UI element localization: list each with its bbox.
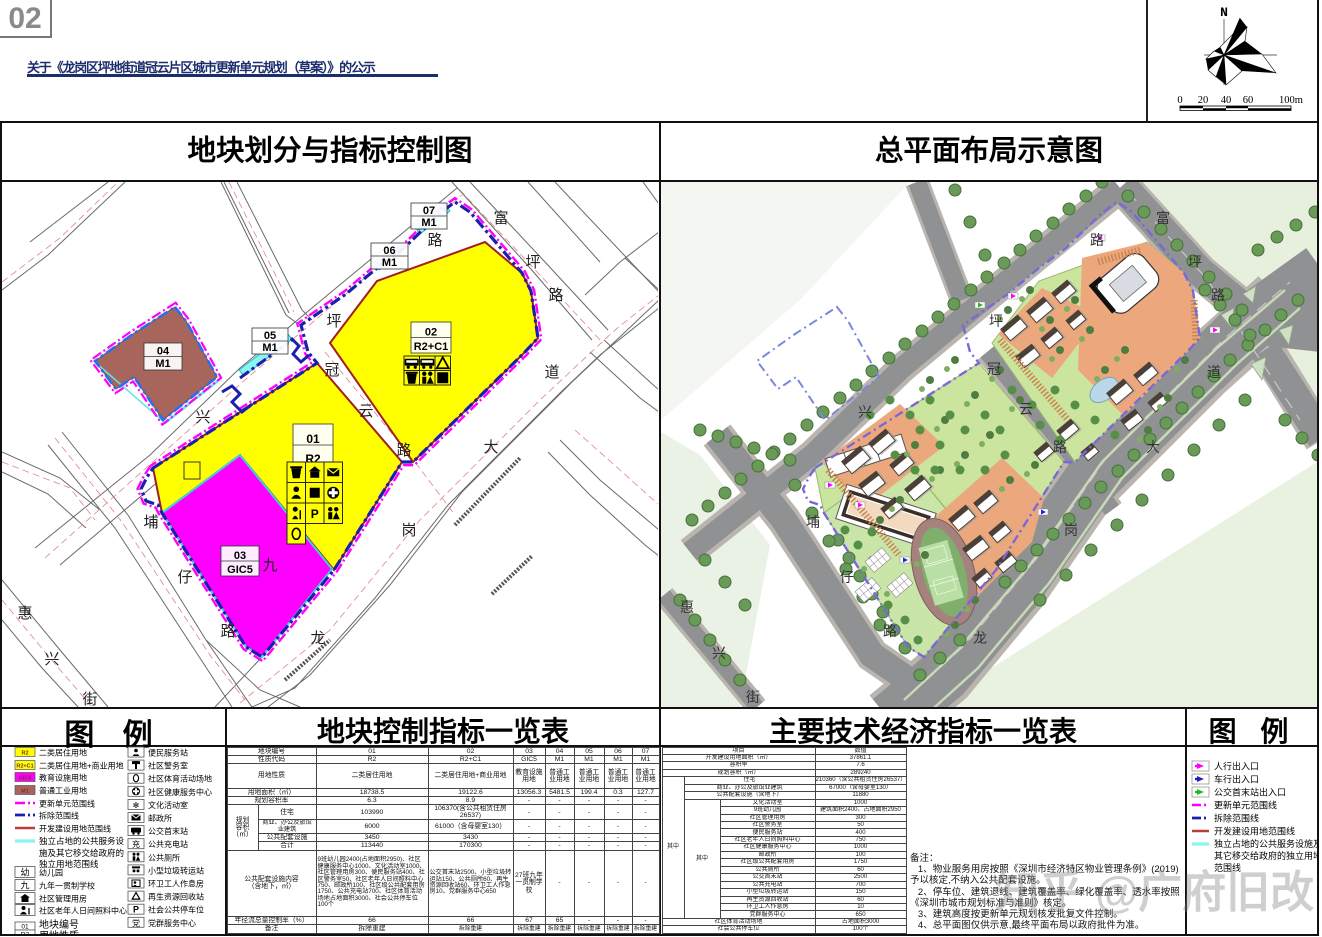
svg-text:0: 0	[1177, 95, 1182, 106]
svg-text:GIC5: GIC5	[19, 776, 32, 782]
svg-text:大: 大	[483, 439, 498, 456]
svg-text:岗: 岗	[401, 522, 416, 539]
svg-text:九: 九	[262, 557, 277, 574]
svg-text:街: 街	[746, 689, 760, 705]
svg-text:07: 07	[423, 205, 435, 217]
svg-text:社区体育活动场地: 社区体育活动场地	[148, 774, 212, 784]
svg-text:公交首末站出入口: 公交首末站出入口	[1214, 787, 1286, 798]
svg-text:06: 06	[383, 245, 395, 257]
svg-text:兴: 兴	[858, 404, 872, 420]
svg-text:独立占地的公共服务设施及: 独立占地的公共服务设施及	[1214, 838, 1318, 849]
svg-text:邮政所: 邮政所	[148, 813, 172, 823]
svg-text:40: 40	[1221, 95, 1232, 106]
svg-text:幼: 幼	[20, 867, 29, 878]
svg-text:M1: M1	[155, 358, 170, 370]
svg-text:独立占地的公共服务设: 独立占地的公共服务设	[39, 836, 125, 846]
svg-text:02: 02	[425, 327, 437, 339]
svg-text:M1: M1	[382, 257, 397, 269]
svg-text:01: 01	[21, 924, 29, 931]
svg-text:道: 道	[544, 364, 559, 381]
svg-text:社区管理用房: 社区管理用房	[39, 894, 87, 904]
svg-text:03: 03	[234, 550, 246, 562]
svg-text:路: 路	[548, 287, 563, 304]
svg-text:惠: 惠	[17, 605, 32, 622]
svg-text:100m: 100m	[1279, 95, 1303, 106]
svg-text:富: 富	[1156, 210, 1170, 226]
svg-text:拆除范围线: 拆除范围线	[39, 811, 79, 821]
svg-text:开发建设用地范围线: 开发建设用地范围线	[1214, 826, 1295, 837]
svg-text:兴: 兴	[195, 409, 210, 426]
svg-text:环卫工人作息房: 环卫工人作息房	[148, 879, 204, 889]
svg-text:冠: 冠	[324, 362, 339, 379]
svg-text:兴: 兴	[44, 651, 59, 668]
svg-text:路: 路	[396, 442, 411, 459]
svg-text:路: 路	[220, 623, 235, 640]
svg-text:九: 九	[20, 881, 29, 891]
svg-text:01: 01	[306, 432, 320, 446]
svg-text:地块编号: 地块编号	[39, 918, 79, 931]
svg-text:富: 富	[493, 209, 508, 227]
svg-text:坪: 坪	[989, 313, 1003, 329]
svg-text:街: 街	[82, 691, 97, 707]
svg-text:龙: 龙	[310, 630, 325, 647]
svg-text:05: 05	[264, 330, 276, 342]
svg-text:坪: 坪	[326, 313, 341, 330]
svg-text:公交首末站: 公交首末站	[148, 826, 188, 836]
svg-text:坪: 坪	[1188, 254, 1202, 270]
svg-text:公共充电站: 公共充电站	[148, 839, 188, 849]
svg-text:文化活动室: 文化活动室	[148, 800, 188, 810]
svg-text:九年一贯制学校: 九年一贯制学校	[39, 881, 95, 891]
svg-text:✻: ✻	[133, 801, 140, 810]
svg-text:仔: 仔	[840, 569, 854, 585]
svg-text:兴: 兴	[712, 645, 726, 661]
svg-text:M1: M1	[21, 789, 29, 795]
svg-text:埔: 埔	[143, 514, 158, 531]
svg-text:普通工业用地: 普通工业用地	[39, 786, 87, 796]
svg-text:20: 20	[1198, 95, 1209, 106]
svg-text:埔: 埔	[806, 514, 820, 530]
svg-text:M1: M1	[421, 217, 436, 229]
svg-text:社会公共停车位: 社会公共停车位	[148, 905, 204, 915]
svg-text:60: 60	[1243, 95, 1254, 106]
svg-text:更新单元范围线: 更新单元范围线	[1214, 800, 1277, 811]
svg-text:路: 路	[1090, 232, 1104, 248]
svg-text:坪: 坪	[525, 254, 540, 271]
svg-text:路: 路	[1211, 287, 1225, 303]
svg-text:冠: 冠	[987, 361, 1001, 377]
svg-text:惠: 惠	[680, 599, 694, 615]
svg-text:GIC5: GIC5	[227, 564, 253, 576]
svg-text:道: 道	[1207, 364, 1221, 380]
svg-text:再生资源回收站: 再生资源回收站	[148, 892, 204, 902]
svg-text:人行出入口: 人行出入口	[1214, 761, 1259, 772]
svg-text:独立用地范围线: 独立用地范围线	[39, 859, 99, 869]
svg-text:公共厕所: 公共厕所	[148, 852, 180, 862]
svg-text:R2+C1: R2+C1	[16, 764, 33, 770]
svg-text:龙: 龙	[973, 630, 987, 646]
svg-text:便民服务站: 便民服务站	[148, 748, 188, 758]
svg-text:充: 充	[132, 839, 140, 849]
svg-text:路: 路	[883, 623, 897, 639]
svg-text:社区老年人日间照料中心: 社区老年人日间照料中心	[39, 906, 127, 916]
svg-text:车行出入口: 车行出入口	[1214, 774, 1259, 785]
svg-text:大: 大	[1146, 439, 1160, 455]
svg-text:路: 路	[1053, 439, 1067, 455]
svg-text:路: 路	[427, 232, 442, 249]
svg-text:小型垃圾转运站: 小型垃圾转运站	[148, 865, 204, 875]
svg-text:04: 04	[157, 346, 170, 358]
svg-text:仔: 仔	[177, 569, 192, 586]
svg-text:N: N	[1220, 5, 1228, 20]
svg-text:党: 党	[132, 918, 140, 928]
svg-text:云: 云	[1019, 401, 1033, 417]
svg-text:幼儿园: 幼儿园	[39, 868, 63, 878]
svg-text:M1: M1	[262, 342, 277, 354]
svg-text:二类居住用地: 二类居住用地	[39, 748, 87, 758]
svg-text:二类居住用地+商业用地: 二类居住用地+商业用地	[39, 761, 124, 771]
svg-text:更新单元范围线: 更新单元范围线	[39, 799, 95, 809]
svg-text:云: 云	[358, 403, 373, 420]
svg-text:P: P	[133, 905, 139, 915]
svg-text:开发建设用地范围线: 开发建设用地范围线	[39, 824, 111, 834]
svg-text:拆除范围线: 拆除范围线	[1214, 813, 1259, 824]
svg-text:R2: R2	[21, 751, 28, 757]
svg-text:社区健康服务中心: 社区健康服务中心	[148, 787, 212, 797]
svg-text:岗: 岗	[1064, 522, 1078, 538]
svg-text:教育设施用地: 教育设施用地	[39, 773, 87, 783]
svg-text:党群服务中心: 党群服务中心	[148, 918, 196, 928]
svg-text:R2+C1: R2+C1	[414, 341, 449, 353]
svg-text:施及其它移交给政府的: 施及其它移交给政府的	[39, 848, 124, 858]
svg-text:社区警务室: 社区警务室	[148, 761, 188, 771]
svg-text:R2: R2	[21, 932, 30, 935]
svg-text:P: P	[311, 507, 319, 521]
